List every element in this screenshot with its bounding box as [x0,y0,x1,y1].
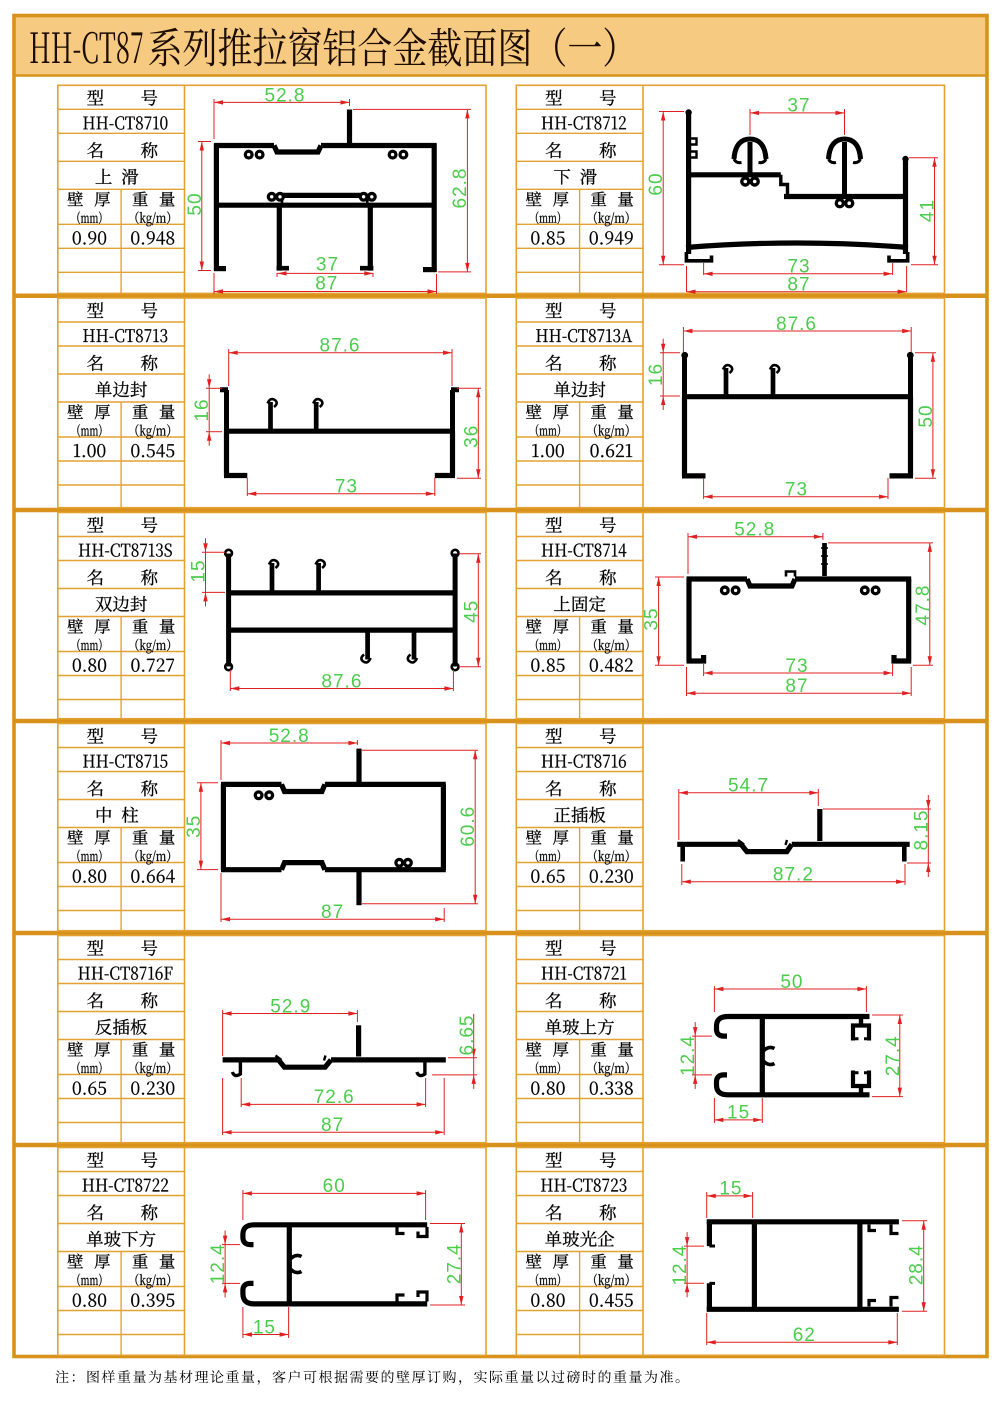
svg-text:16: 16 [192,398,213,421]
svg-text:15: 15 [253,1317,276,1338]
svg-text:41: 41 [918,199,939,222]
svg-text:52.8: 52.8 [734,520,775,541]
svg-text:72.6: 72.6 [314,1087,355,1108]
svg-text:35: 35 [184,815,205,838]
svg-text:87: 87 [785,676,808,697]
svg-text:87.2: 87.2 [773,865,814,886]
svg-text:87.6: 87.6 [320,336,361,357]
svg-text:12.4: 12.4 [678,1035,699,1076]
svg-text:87.6: 87.6 [321,671,362,692]
svg-text:60.6: 60.6 [458,806,479,847]
svg-text:52.8: 52.8 [269,726,310,747]
svg-text:27.4: 27.4 [444,1243,465,1284]
svg-text:73: 73 [785,480,808,501]
svg-text:15: 15 [189,559,210,582]
svg-text:87: 87 [321,1115,344,1136]
svg-text:87: 87 [787,275,810,296]
svg-text:12.4: 12.4 [670,1245,691,1286]
svg-text:47.8: 47.8 [913,585,934,626]
svg-text:15: 15 [727,1103,750,1124]
svg-text:54.7: 54.7 [728,776,769,797]
svg-text:87: 87 [315,273,338,294]
svg-text:50: 50 [185,192,206,215]
svg-text:73: 73 [785,656,808,677]
svg-text:16: 16 [646,363,667,386]
svg-text:45: 45 [461,600,482,623]
svg-text:36: 36 [461,425,482,448]
svg-text:52.9: 52.9 [270,996,311,1017]
svg-text:27.4: 27.4 [883,1035,904,1076]
svg-text:8.15: 8.15 [911,810,932,851]
svg-text:52.8: 52.8 [265,85,306,106]
svg-text:50: 50 [916,404,937,427]
svg-text:37: 37 [787,96,810,117]
svg-text:62.8: 62.8 [450,168,471,209]
svg-text:87: 87 [321,902,344,923]
svg-text:60: 60 [323,1176,346,1197]
svg-text:35: 35 [642,607,663,630]
svg-text:6.65: 6.65 [457,1015,478,1056]
svg-text:87.6: 87.6 [776,314,817,335]
svg-text:62: 62 [793,1325,816,1346]
svg-text:15: 15 [719,1179,742,1200]
svg-text:50: 50 [780,972,803,993]
svg-text:28.4: 28.4 [907,1244,928,1285]
svg-text:73: 73 [335,477,358,498]
svg-text:60: 60 [646,172,667,195]
svg-text:12.4: 12.4 [208,1243,229,1284]
